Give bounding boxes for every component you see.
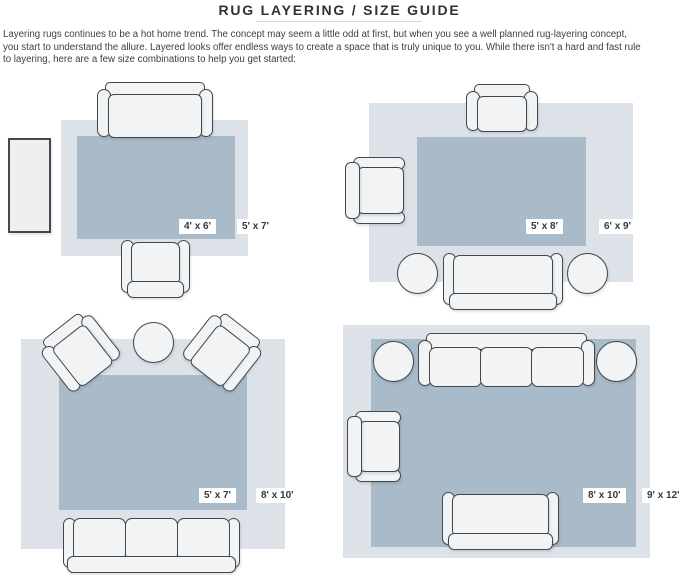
round-side-table [133, 322, 174, 363]
inner-rug-size-label: 8' x 10' [583, 488, 626, 503]
sofa-arm [418, 340, 432, 386]
armchair [35, 307, 124, 395]
outer-rug-size-label: 5' x 7' [237, 219, 274, 234]
pouf [397, 253, 438, 294]
inner-rug [77, 136, 235, 239]
armchair-arm [121, 240, 134, 293]
inner-rug [59, 375, 247, 510]
armchair-seat [359, 421, 400, 472]
armchair-back [215, 312, 262, 353]
intro-line-1: Layering rugs continues to be a hot home… [3, 29, 679, 42]
sofa-back [449, 293, 557, 310]
sofa-cushions [429, 347, 584, 387]
armchair-back [41, 312, 88, 353]
pouf [596, 341, 637, 382]
armchair-arm [180, 312, 224, 363]
sofa-seat [453, 255, 553, 297]
armchair-back [347, 416, 362, 477]
intro-text: Layering rugs continues to be a hot home… [3, 29, 679, 67]
loveseat-seat [452, 494, 549, 537]
outer-rug-size-label: 9' x 12' [642, 488, 679, 503]
loveseat-arm [442, 492, 455, 545]
outer-rug-size-label: 8' x 10' [256, 488, 299, 503]
inner-rug-size-label: 5' x 7' [199, 488, 236, 503]
sofa-cushion [480, 347, 533, 387]
sofa-arm [97, 89, 111, 137]
intro-line-3: to layering, here are a few size combina… [3, 54, 679, 67]
title-divider [256, 21, 422, 22]
layout-top-right: 5' x 8' 6' x 9' [0, 0, 679, 575]
sofa-cushions [73, 518, 230, 561]
armchair-seat [51, 323, 115, 388]
loveseat [442, 492, 559, 550]
sofa-back [67, 556, 236, 573]
page-title: RUG LAYERING / SIZE GUIDE [0, 2, 679, 18]
armchair [180, 307, 269, 395]
sofa-cushion [531, 347, 584, 387]
sofa-cushion [429, 347, 482, 387]
sofa-arm [550, 253, 563, 305]
sofa [418, 333, 595, 387]
sofa [443, 253, 563, 310]
intro-line-2: you start to understand the allure. Laye… [3, 42, 679, 55]
inner-rug [371, 339, 636, 547]
inner-rug-size-label: 5' x 8' [526, 219, 563, 234]
armchair-arm [353, 211, 405, 224]
armchair-back [345, 162, 360, 219]
armchair [345, 157, 407, 224]
sofa-arm [227, 518, 240, 568]
armchair-seat [131, 242, 180, 285]
sofa-arm [199, 89, 213, 137]
armchair-back [127, 281, 184, 298]
outer-rug-size-label: 6' x 9' [599, 219, 636, 234]
armchair [347, 411, 403, 482]
sofa-back [426, 333, 587, 350]
sofa-arm [443, 253, 456, 305]
armchair-seat [188, 323, 252, 388]
rug-size-guide-page: RUG LAYERING / SIZE GUIDE Layering rugs … [0, 0, 679, 575]
sofa-cushion [125, 518, 178, 561]
sofa-arm [581, 340, 595, 386]
armchair-arm [177, 240, 190, 293]
armchair-seat [357, 167, 404, 214]
armchair-arm [355, 469, 401, 482]
outer-rug [343, 325, 650, 558]
sofa [97, 82, 213, 138]
armchair-arm [39, 343, 83, 394]
loveseat-back [448, 533, 553, 550]
layout-top-left: 4' x 6' 5' x 7' [0, 0, 679, 575]
pouf [373, 341, 414, 382]
inner-rug-size-label: 4' x 6' [179, 219, 216, 234]
layout-bottom-right: 8' x 10' 9' x 12' [0, 0, 679, 575]
sofa-back [105, 82, 205, 97]
armchair-arm [78, 312, 122, 363]
armchair-arm [355, 411, 401, 424]
sofa-cushion [177, 518, 230, 561]
armchair-arm [220, 343, 264, 394]
outer-rug [369, 103, 633, 282]
console-table [8, 138, 51, 233]
armchair-arm [524, 91, 538, 131]
loveseat-arm [546, 492, 559, 545]
layout-bottom-left: 5' x 7' 8' x 10' [0, 0, 679, 575]
inner-rug [417, 137, 586, 246]
sofa-cushion [73, 518, 126, 561]
armchair-seat [477, 96, 527, 132]
sofa-arm [63, 518, 76, 568]
armchair [466, 84, 538, 132]
pouf [567, 253, 608, 294]
armchair-arm [353, 157, 405, 170]
armchair-arm [466, 91, 480, 131]
armchair-back [474, 84, 530, 99]
armchair [121, 240, 190, 298]
sofa-seat [108, 94, 202, 138]
sofa [63, 518, 240, 573]
outer-rug [21, 339, 285, 549]
outer-rug [61, 120, 248, 256]
